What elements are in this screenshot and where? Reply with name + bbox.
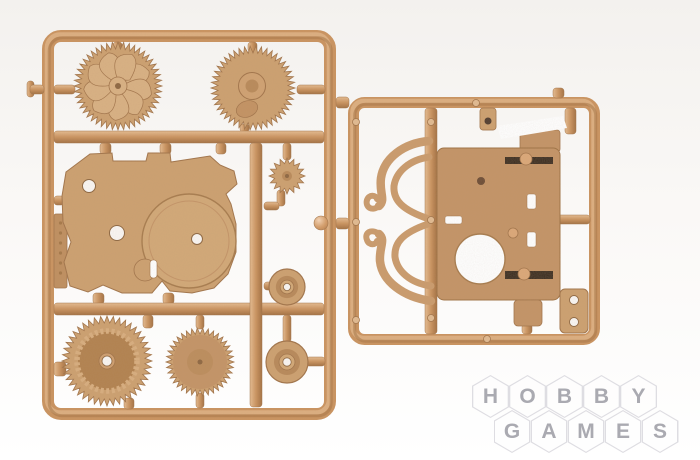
housing-slot (527, 194, 536, 209)
molded-text-mark (59, 221, 62, 224)
housing-small-hole (477, 177, 485, 185)
hook-arm (379, 234, 431, 301)
ejector-pin-mark (353, 119, 360, 126)
left-sprue (27, 35, 331, 416)
pulley-small (269, 269, 305, 305)
double-ring-gear (62, 316, 152, 406)
hub-hole (102, 356, 112, 366)
plate-hole (110, 226, 125, 241)
tab-hole (485, 118, 492, 125)
runner-bar (283, 315, 291, 342)
pulley-hole (283, 358, 291, 366)
center-mark (198, 360, 203, 365)
molded-text-mark (59, 271, 62, 274)
s-hook-lower (366, 224, 431, 301)
runner-bar (196, 315, 204, 329)
runner-bar (336, 218, 349, 229)
runner-bar (100, 143, 111, 154)
pulley-hole (283, 283, 290, 290)
hook-arm (379, 141, 429, 206)
small-pinion-gear (269, 158, 305, 194)
runner-bar (163, 293, 174, 304)
product-image: HOBBYGAMES (0, 0, 700, 460)
bracket-hole (570, 318, 579, 327)
runner-bar (216, 143, 226, 154)
ejector-pin-mark (473, 100, 480, 107)
hub-hole (115, 83, 121, 89)
housing-bottom-tab (514, 300, 542, 326)
runner-bar (306, 357, 325, 366)
hook-arm (394, 157, 429, 219)
housing-pin (508, 228, 518, 238)
sprue-photo (0, 0, 700, 460)
runner-bar (143, 315, 153, 328)
hub-gear (211, 46, 295, 130)
boss-hole (192, 234, 203, 245)
plate-notch (150, 260, 157, 278)
right-sprue (336, 88, 596, 343)
housing-big-hole (455, 234, 505, 284)
sprue-assembly (27, 35, 596, 416)
molded-text-mark (59, 231, 62, 234)
runner-bar (54, 85, 75, 94)
plain-spur-gear (166, 328, 234, 396)
contact-pin (520, 153, 532, 165)
runner-bar (336, 97, 349, 108)
housing-slot (445, 216, 462, 224)
runner-bar (93, 293, 104, 304)
gearbox-housing (437, 108, 567, 326)
molded-text-mark (59, 261, 62, 264)
hub-core (246, 80, 259, 93)
crossbar-top (54, 131, 324, 143)
pulley-large (266, 341, 308, 383)
runner-bar (557, 215, 590, 224)
runner-bar (565, 108, 576, 134)
side-bracket (560, 289, 588, 333)
housing-slot (527, 232, 536, 247)
ejector-pin-mark (484, 336, 491, 343)
main-body-plate (62, 153, 237, 293)
molded-text-mark (59, 241, 62, 244)
vertical-runner (250, 143, 262, 407)
hub-hole (285, 174, 289, 178)
ejector-pin-mark (428, 119, 435, 126)
fan-turbine-gear (74, 42, 162, 130)
runner-bar (30, 85, 44, 94)
ejector-pin-mark (353, 219, 360, 226)
runner-bar (297, 85, 325, 94)
s-hook-upper (367, 141, 429, 219)
resin-ball (314, 216, 328, 230)
runner-bar (553, 88, 564, 98)
ejector-pin-mark (353, 317, 360, 324)
plate-hole (83, 180, 96, 193)
runner-bar (264, 202, 279, 210)
bracket-hole (570, 296, 579, 305)
molded-text-mark (59, 251, 62, 254)
ejector-pin-mark (428, 217, 435, 224)
ejector-pin-mark (428, 315, 435, 322)
runner-bar (160, 143, 171, 154)
contact-pin (518, 268, 530, 280)
